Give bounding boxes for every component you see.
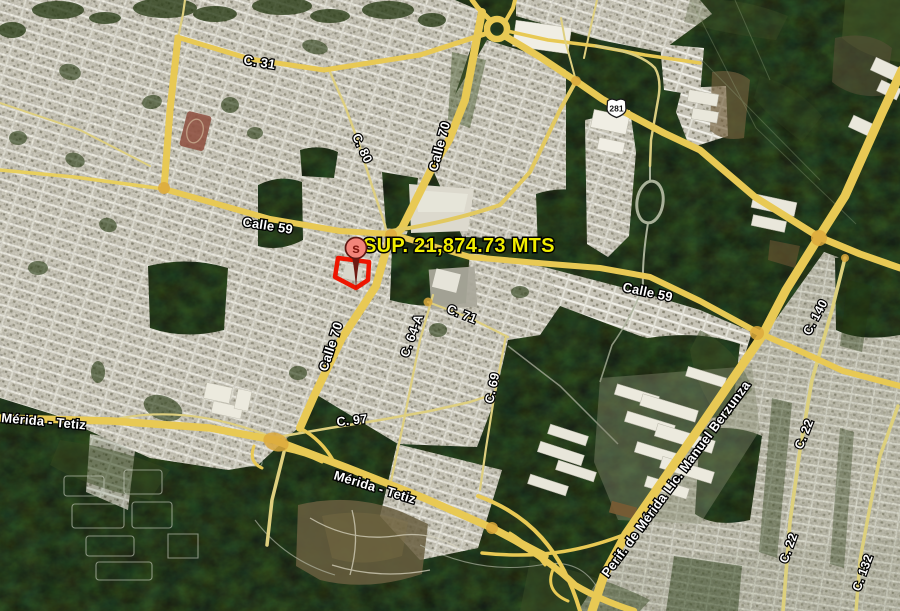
- svg-text:281: 281: [609, 104, 623, 114]
- svg-text:SUP. 21,874.73 MTS: SUP. 21,874.73 MTS: [363, 235, 555, 257]
- svg-text:s: s: [352, 240, 360, 256]
